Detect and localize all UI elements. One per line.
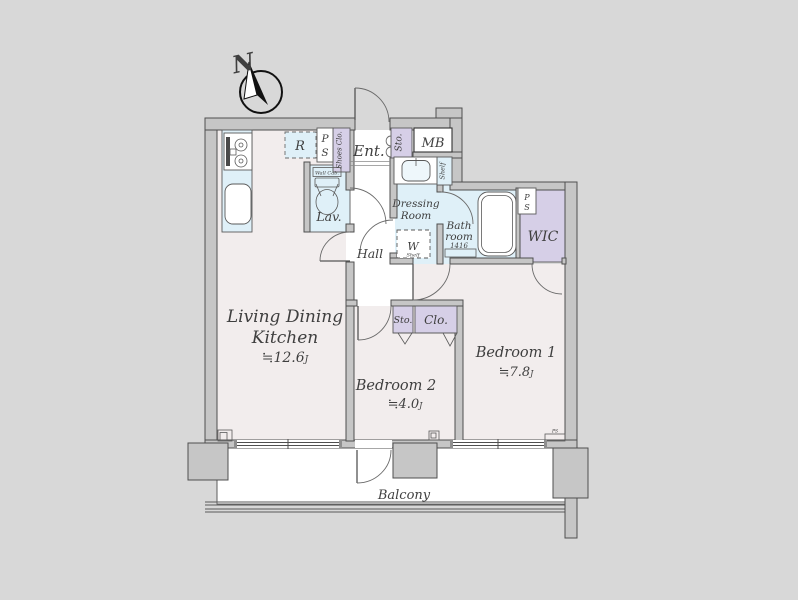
pipe-space-wic-s: S <box>524 203 530 212</box>
hall-storage-label: Sto. <box>394 315 413 326</box>
windows <box>234 439 547 449</box>
pipe-space-notch-label: PS <box>551 429 558 435</box>
bathtub <box>478 192 516 256</box>
bedroom-closet-label: Clo. <box>424 313 448 327</box>
bedroom2-size: ≒4.0J <box>388 397 424 412</box>
meter-box-label: MB <box>421 136 445 151</box>
washer-label: W <box>407 240 420 253</box>
kitchen-counter <box>222 130 252 232</box>
washer-shelf-label: Shelf <box>406 253 420 259</box>
grill <box>226 137 230 166</box>
bathroom-size-code: 1416 <box>450 242 468 250</box>
hall-label: Hall <box>356 246 383 261</box>
kitchen-sink <box>225 184 251 224</box>
ldk-size: ≒12.6J <box>262 350 310 366</box>
pipe-space-top-s: S <box>321 147 328 159</box>
ldk-label-line2: Kitchen <box>251 328 318 348</box>
pipe-space-wic-p: P <box>523 193 530 202</box>
shoes-closet-label: Shoes Clo. <box>336 131 344 168</box>
dressing-label-line1: Dressing <box>391 198 440 210</box>
bedroom1-window <box>450 439 547 449</box>
entrance-label: Ent. <box>352 142 384 160</box>
refrigerator-label: R <box>294 139 305 154</box>
floor-plan-page: N Living Dining Kitchen ≒12.6J Bedroom 1… <box>0 0 798 600</box>
dressing-label-line2: Room <box>400 210 432 222</box>
ldk-window <box>234 439 342 449</box>
balcony-label: Balcony <box>377 488 431 503</box>
bedroom1-size: ≒7.8J <box>499 365 535 380</box>
pipe-space-top-p: P <box>320 133 329 145</box>
dressing-sink <box>394 157 437 184</box>
entrance-storage-label: Sto. <box>395 133 405 151</box>
wall-cabinet-label: Wall Cab. <box>315 171 339 177</box>
lavatory-label: Lav. <box>315 209 341 224</box>
bedroom2-label: Bedroom 2 <box>355 378 437 394</box>
floor-plan-drawing: N Living Dining Kitchen ≒12.6J Bedroom 1… <box>0 0 798 600</box>
balcony-door-opening <box>355 440 392 448</box>
wic-label: WIC <box>528 229 559 245</box>
ldk-label-line1: Living Dining <box>226 307 343 327</box>
bedroom1-label: Bedroom 1 <box>475 345 557 361</box>
shelf-label: Shelf <box>439 161 447 180</box>
